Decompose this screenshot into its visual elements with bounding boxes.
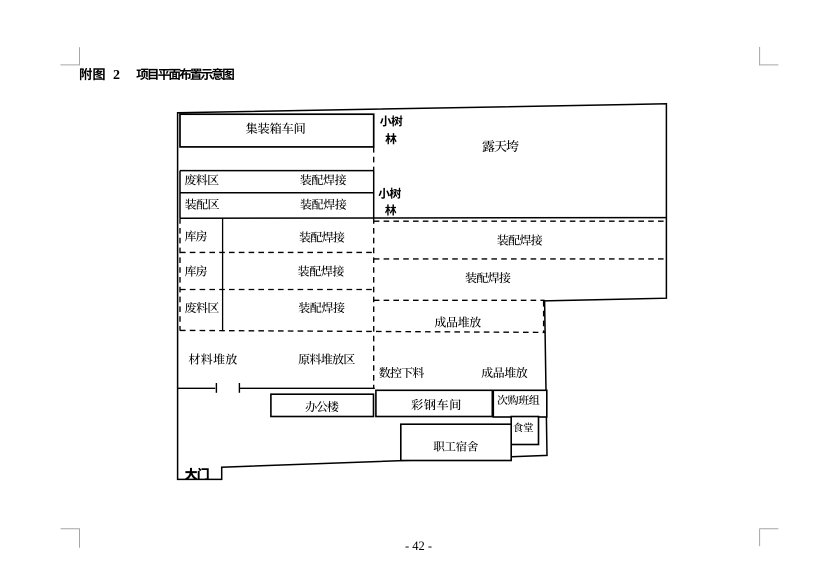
svg-text:2: 2 xyxy=(113,68,120,83)
svg-text:- 42 -: - 42 - xyxy=(405,539,432,553)
